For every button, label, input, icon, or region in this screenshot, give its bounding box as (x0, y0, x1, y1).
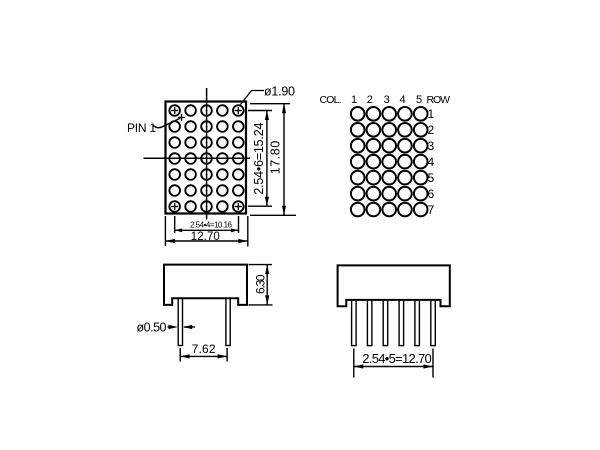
svg-text:2.54•5=12.70: 2.54•5=12.70 (362, 351, 432, 366)
svg-text:4: 4 (428, 155, 435, 169)
svg-text:2.54•4=10.16: 2.54•4=10.16 (190, 221, 233, 230)
svg-text:4: 4 (400, 94, 406, 106)
svg-text:3: 3 (384, 94, 390, 106)
svg-text:5: 5 (416, 94, 422, 106)
svg-text:7: 7 (428, 203, 435, 217)
svg-text:ROW: ROW (427, 94, 451, 106)
svg-text:1: 1 (428, 107, 435, 121)
svg-text:2.54•6=15.24: 2.54•6=15.24 (252, 123, 266, 195)
svg-text:5: 5 (428, 171, 435, 185)
svg-text:PIN 1: PIN 1 (127, 121, 156, 135)
svg-text:COL.: COL. (320, 94, 342, 106)
svg-text:ø0.50: ø0.50 (137, 321, 167, 335)
svg-text:12.70: 12.70 (191, 231, 220, 243)
svg-text:6: 6 (428, 187, 435, 201)
svg-text:7.62: 7.62 (192, 342, 216, 356)
svg-text:2: 2 (367, 94, 373, 106)
svg-text:ø1.90: ø1.90 (264, 85, 295, 99)
svg-text:6.30: 6.30 (253, 274, 267, 294)
svg-text:17.80: 17.80 (269, 141, 283, 175)
svg-text:2: 2 (428, 123, 435, 137)
svg-text:3: 3 (428, 139, 435, 153)
svg-text:1: 1 (351, 94, 357, 106)
